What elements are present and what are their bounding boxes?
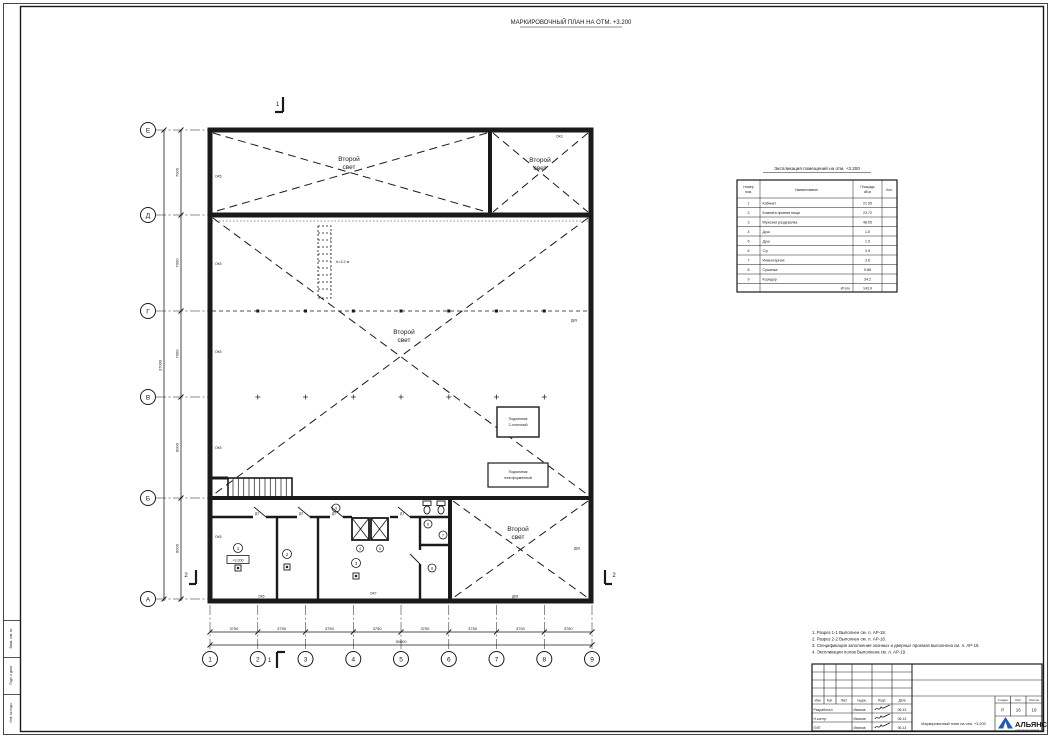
tb-col-header: Дата — [898, 699, 905, 703]
section-mark-label: 2 — [184, 573, 188, 579]
window-mark: ОК5 — [215, 446, 222, 450]
room-tag: 6 — [427, 523, 429, 527]
table-cell: Кабинет — [763, 202, 777, 206]
axis-bubble-label: 6 — [447, 656, 451, 663]
tb-stage-value: Р — [1001, 708, 1004, 713]
second-light-label: свет — [342, 164, 355, 171]
table-cell: 23.72 — [863, 211, 872, 215]
table-header: Площадь — [860, 185, 875, 189]
table-cell: 3 — [748, 221, 750, 225]
axis-bubble-label: 7 — [495, 656, 499, 663]
table-cell: 1.5 — [865, 230, 870, 234]
explication-table: Экспликация помещений на отм. +3.200 Ном… — [737, 165, 897, 292]
table-cell: 21.55 — [863, 202, 872, 206]
company-logo: АЛЬЯНС строительная компания — [998, 717, 1048, 731]
side-stamp: Взам. инв. № Подп. и дата Инв. № подл. — [9, 628, 13, 722]
room-tag: 7 — [442, 534, 444, 538]
table-header: Наименование — [795, 188, 818, 192]
axis-bubble-label: 5 — [399, 656, 403, 663]
window-mark: ОК5 — [215, 262, 222, 266]
dim-label: 7000 — [175, 349, 180, 359]
axis-bubble-label: Б — [146, 495, 150, 502]
lift-label: Подъемник — [509, 417, 528, 421]
dim-total-label: 30000 — [395, 639, 407, 644]
ladder-shaft — [318, 226, 331, 298]
tb-stage-label: Стадия — [998, 698, 1009, 702]
room-tag: 5 — [379, 547, 381, 551]
table-cell: 2 — [748, 211, 750, 215]
axis-bubble-label: В — [146, 394, 150, 401]
section-marks: 1 1 2 2 — [184, 97, 616, 668]
door-mark: ДК9 — [571, 319, 577, 323]
tb-name: Иванов — [854, 708, 866, 712]
second-light-label: Второй — [529, 156, 551, 164]
table-cell: 4 — [748, 230, 750, 234]
door-mark: ДК6 — [574, 547, 580, 551]
note-line: 3. Спецификация заполнения оконных и две… — [812, 643, 980, 648]
tb-date: 06.13 — [898, 708, 907, 712]
dim-label: 3750 — [420, 626, 430, 631]
axis-bubble-label: 9 — [590, 656, 594, 663]
table-cell: Душ — [763, 230, 770, 234]
dimensions-left: 7000 7000 7000 8000 8000 37000 Е Д Г В Б… — [141, 123, 184, 607]
room-tag: 3 — [355, 561, 358, 566]
company-subtitle: строительная компания — [1015, 729, 1040, 731]
tb-role: Разработал — [814, 708, 833, 712]
dim-label: 3750 — [277, 626, 287, 631]
dim-label: 3750 — [373, 626, 383, 631]
table-cell: 7 — [748, 259, 750, 263]
lift-label: 2-стоечный — [509, 423, 528, 427]
tb-role: Н.контр. — [814, 717, 827, 721]
drawing-sheet: { "sheet_title": "МАРКИРОВОЧНЫЙ ПЛАН НА … — [0, 0, 1051, 738]
tb-sheet-value: 16 — [1016, 708, 1022, 713]
room-tag: 4 — [359, 547, 361, 551]
section-mark-label: 1 — [276, 102, 280, 108]
door-mark: ДК8 — [512, 595, 518, 599]
tb-col-header: Подп. — [878, 699, 887, 703]
table-cell: Мужская раздевалка — [763, 221, 798, 225]
tb-col-header: Кол. — [827, 699, 833, 703]
company-name: АЛЬЯНС — [1015, 720, 1048, 729]
axis-lines — [156, 130, 592, 651]
stair — [210, 478, 292, 497]
table-cell: 5 — [748, 240, 750, 244]
lift-labels: Подъемник 2-стоечный Подъемник платформе… — [488, 407, 548, 487]
dim-total-label: 37000 — [158, 359, 163, 371]
table-cell: Комната приема пищи — [763, 211, 800, 215]
lift-label: платформенный — [504, 476, 532, 480]
room-tag: 8 — [431, 567, 433, 571]
tb-sheets-label: Листов — [1029, 698, 1039, 702]
tb-col-header: №док. — [857, 699, 866, 703]
dim-label: 3750 — [325, 626, 335, 631]
axis-b-ticks — [255, 395, 547, 400]
ladder-label: h=3.2 м — [336, 260, 350, 264]
table-cell: 5.88 — [864, 268, 871, 272]
dim-label: 3750 — [229, 626, 239, 631]
axis-bubble-label: 3 — [304, 656, 308, 663]
axis-bubble-label: 4 — [351, 656, 355, 663]
door-label: Д2 — [255, 512, 259, 516]
dim-label: 7000 — [175, 258, 180, 268]
table-header: Номер — [743, 185, 753, 189]
second-light-label: свет — [397, 337, 410, 344]
side-stamp-label: Инв. № подл. — [9, 702, 13, 722]
second-light-label: Второй — [507, 525, 529, 533]
table-cell: Инвентарная — [763, 259, 785, 263]
tb-col-header: Лист — [841, 699, 848, 703]
table-cell: 3.9 — [865, 249, 870, 253]
second-light-label: Второй — [393, 328, 415, 336]
tb-role: ГИП — [814, 726, 821, 730]
plan-canvas: Взам. инв. № Подп. и дата Инв. № подл. М… — [0, 0, 1051, 738]
second-light-label: Второй — [338, 155, 360, 163]
second-light-label: свет — [511, 534, 524, 541]
second-light-cross — [213, 133, 588, 598]
table-cell: 48.05 — [863, 221, 872, 225]
table-cell: Душ — [763, 240, 770, 244]
table-header: Кол. — [886, 188, 893, 192]
shower-stalls — [352, 518, 388, 540]
door-labels: Д2 Д3 Д2 Д1 — [255, 512, 404, 516]
side-stamp-label: Подп. и дата — [9, 666, 13, 685]
axis-bubble-label: Е — [146, 127, 151, 134]
axis-bubble-label: А — [146, 596, 151, 603]
section-mark-label: 2 — [612, 573, 616, 579]
window-mark: ОК5 — [215, 350, 222, 354]
axis-bubble-label: Г — [146, 308, 150, 315]
table-cell: 1.5 — [865, 240, 870, 244]
table-cell: 9 — [748, 278, 750, 282]
tb-doc-title: Маркировочный план на отм. +3.200 — [921, 722, 985, 726]
door-label: Д1 — [400, 512, 404, 516]
room-tag: 2 — [286, 552, 289, 557]
table-header: кВ.м — [864, 190, 872, 194]
room-tag: 9 — [335, 507, 337, 511]
axis-bubble-label: 2 — [256, 656, 260, 663]
table-cell: 6 — [748, 249, 750, 253]
dim-label: 8000 — [175, 442, 180, 452]
page-title: МАРКИРОВОЧНЫЙ ПЛАН НА ОТМ. +3.200 — [511, 18, 632, 26]
tb-sheets-value: 19 — [1031, 708, 1037, 713]
table-cell: 1 — [748, 202, 750, 206]
note-line: 1. Разрез 1-1 Выполнен см. л. АР-18. — [812, 630, 886, 635]
dim-label: 3750 — [516, 626, 526, 631]
tb-name: Иванов — [854, 726, 866, 730]
walls — [208, 128, 593, 603]
tb-date: 06.13 — [898, 717, 907, 721]
interior-grid-lines — [212, 221, 589, 311]
table-cell: С/у — [763, 249, 769, 253]
dim-label: 3750 — [564, 626, 574, 631]
tb-col-header: Изм. — [815, 699, 822, 703]
table-total-value: 143.9 — [863, 287, 872, 291]
tb-sheet-label: Лист — [1015, 698, 1022, 702]
lift-label: Подъемник — [509, 470, 528, 474]
table-cell: Коридор — [763, 278, 777, 282]
door-label: Д3 — [299, 512, 303, 516]
note-line: 2. Разрез 2-2 Выполнен см. л. АР-18. — [812, 637, 886, 642]
second-light-label: свет — [533, 165, 546, 172]
wc-fixtures — [235, 501, 445, 579]
notes: 1. Разрез 1-1 Выполнен см. л. АР-18. 2. … — [812, 630, 980, 655]
dim-label: 8000 — [175, 543, 180, 553]
signatures — [875, 705, 890, 728]
level-mark: +3.200 — [232, 559, 243, 563]
tb-name: Иванов — [854, 717, 866, 721]
dim-label: 3750 — [468, 626, 478, 631]
window-mark: ОК3 — [556, 135, 563, 139]
window-mark: ОК6 — [258, 595, 265, 599]
tb-date: 06.13 — [898, 726, 907, 730]
axis-bubble-label: Д — [146, 212, 151, 219]
table-cell: 34.2 — [864, 278, 871, 282]
room-tags: 1 +3.200 2 3 4 5 6 7 8 9 — [227, 504, 447, 572]
room-tag: 1 — [237, 546, 240, 551]
table-title: Экспликация помещений на отм. +3.200 — [774, 165, 860, 171]
axis-bubble-label: 1 — [208, 656, 212, 663]
side-stamp-label: Взам. инв. № — [9, 628, 13, 648]
title-block: Изм. Кол. Лист №док. Подп. Дата Разработ… — [812, 664, 1048, 731]
window-mark: ОК7 — [370, 592, 377, 596]
window-mark: ОК5 — [215, 175, 222, 179]
note-line: 4. Экспликация полов Выполнена см. л. АР… — [812, 650, 906, 655]
table-total-label: Итого — [841, 287, 850, 291]
axis-bubble-label: 8 — [542, 656, 546, 663]
table-header: пом. — [745, 190, 752, 194]
window-mark: ОК5 — [215, 535, 222, 539]
table-cell: Сушилка — [763, 268, 778, 272]
section-mark-label: 1 — [268, 658, 272, 664]
table-cell: 3.6 — [865, 259, 870, 263]
table-cell: 8 — [748, 268, 750, 272]
dim-label: 7000 — [175, 167, 180, 177]
